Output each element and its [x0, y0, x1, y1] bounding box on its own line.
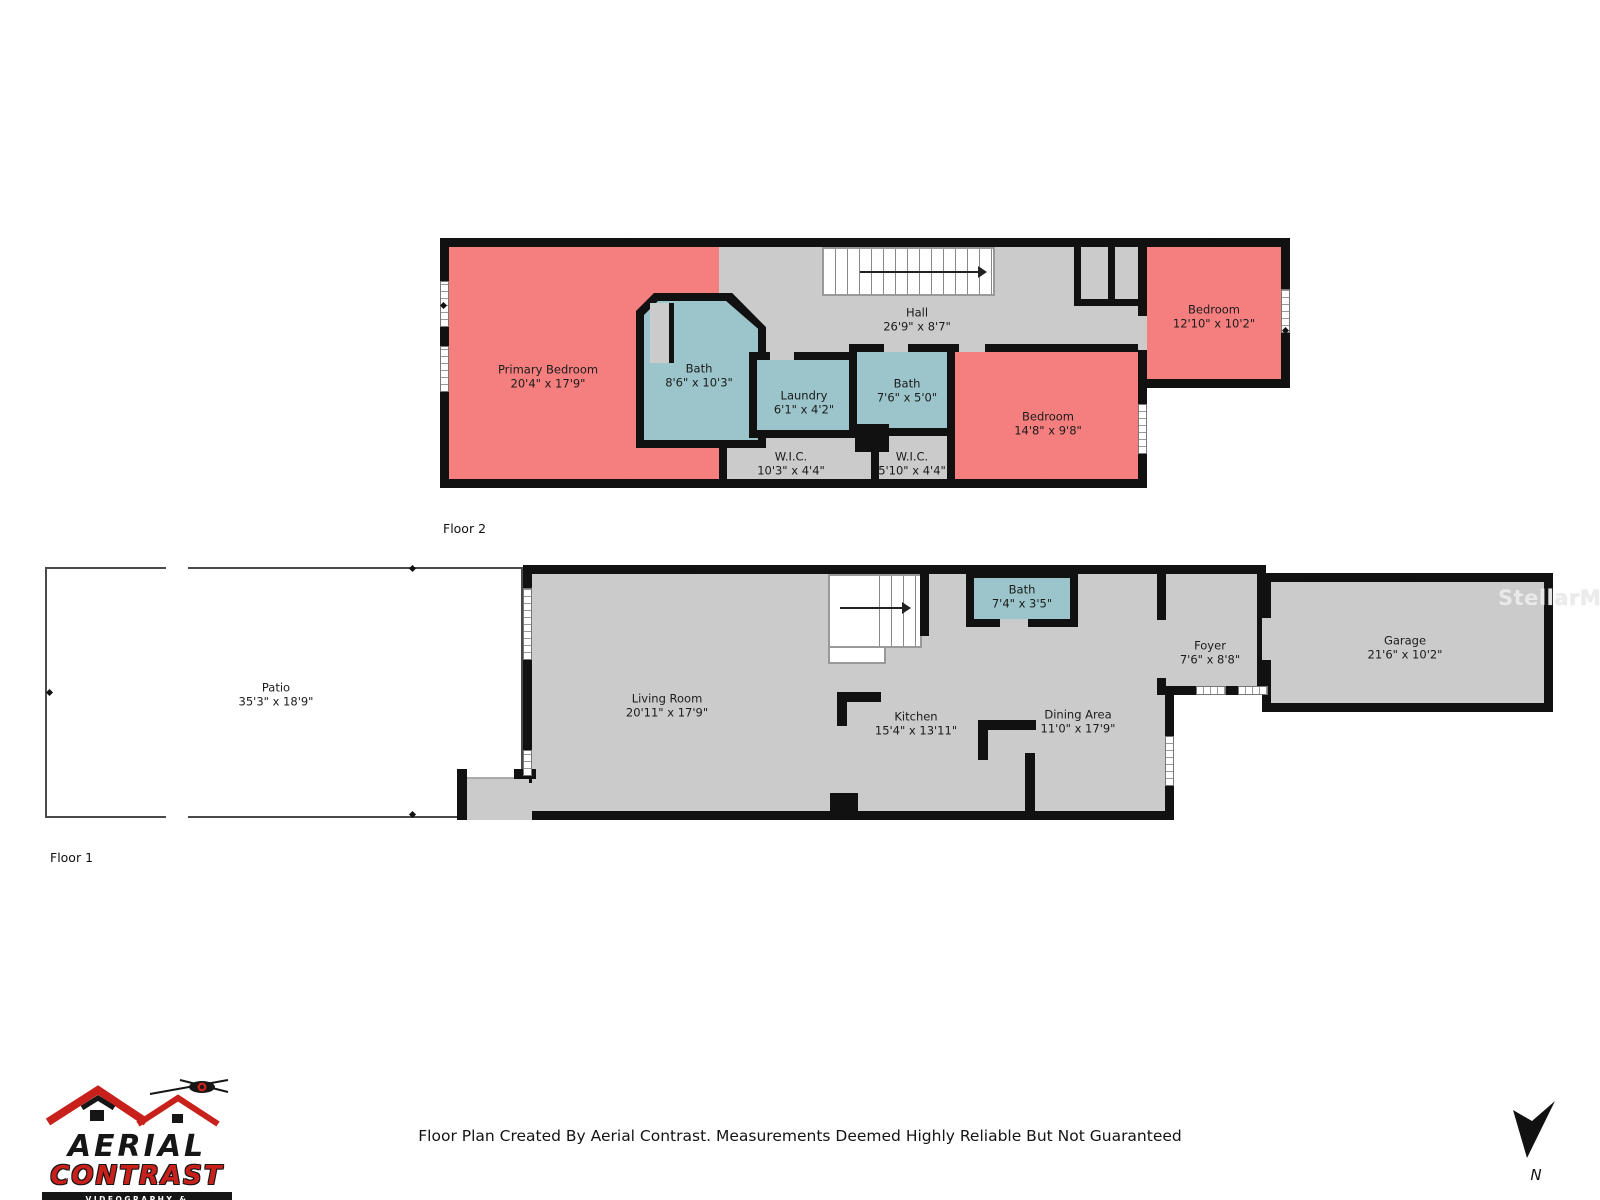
- floor1-label: Floor 1: [50, 850, 93, 865]
- room-label-bath1: Bath8'6" x 10'3": [665, 362, 733, 391]
- room-label-garage: Garage21'6" x 10'2": [1368, 634, 1443, 663]
- window: [440, 346, 449, 392]
- floor1-stairs: [828, 574, 922, 648]
- kitchen-wall: [837, 692, 847, 726]
- bath2-door-gap: [884, 344, 908, 352]
- stair-wall: [920, 572, 929, 636]
- bath3-door-gap: [1000, 619, 1028, 627]
- north-indicator: N: [1505, 1098, 1567, 1184]
- stellar-mls-watermark: StellarMLS: [1498, 586, 1600, 610]
- room-label-bedroom3: Bedroom12'10" x 10'2": [1173, 303, 1255, 332]
- roof-window: [172, 1114, 183, 1123]
- closet-wall: [1074, 247, 1081, 305]
- north-arrow-icon: [1505, 1098, 1567, 1160]
- window: [523, 588, 532, 660]
- stairs-direction-arrow: [840, 607, 902, 609]
- patio-opening: [166, 565, 188, 571]
- floorplan-page: Primary Bedroom20'4" x 17'9" Bath8'6" x …: [0, 0, 1600, 1200]
- logo-roof-drone-graphic: [42, 1076, 232, 1128]
- window: [1165, 736, 1174, 786]
- center-block-wall: [855, 424, 889, 452]
- room-label-living-room: Living Room20'11" x 17'9": [626, 692, 708, 721]
- foyer-passage-gap: [1157, 620, 1174, 678]
- room-label-wic2: W.I.C.5'10" x 4'4": [878, 450, 946, 479]
- front-door-sidelight: [1238, 686, 1268, 695]
- logo-text-contrast: CONTRAST: [42, 1163, 232, 1189]
- floor2-label: Floor 2: [443, 521, 486, 536]
- alcove-wall: [457, 769, 467, 820]
- bath1-alcove: [650, 303, 674, 363]
- stairs-direction-arrow: [860, 271, 978, 273]
- roof-window: [90, 1110, 104, 1121]
- window: [1138, 404, 1147, 454]
- kitchen-counter-wall: [978, 720, 988, 760]
- front-door-sidelight: [1196, 686, 1226, 695]
- bedroom3-door-gap: [1138, 316, 1147, 350]
- disclaimer-text: Floor Plan Created By Aerial Contrast. M…: [0, 1127, 1600, 1145]
- room-label-laundry: Laundry6'1" x 4'2": [774, 389, 834, 418]
- closet-wall: [1074, 299, 1146, 306]
- north-label: N: [1505, 1166, 1567, 1184]
- closet-wall: [1108, 247, 1115, 305]
- laundry-door-gap: [770, 352, 794, 360]
- dining-divider-wall: [1025, 753, 1035, 813]
- stair-landing: [828, 646, 886, 664]
- floor2-stairs: [822, 247, 995, 296]
- alcove-opening: [523, 783, 532, 820]
- room-label-bath3: Bath7'4" x 3'5": [992, 583, 1052, 612]
- room-label-patio: Patio35'3" x 18'9": [239, 681, 314, 710]
- room-label-hall: Hall26'9" x 8'7": [883, 306, 951, 335]
- patio-opening: [166, 814, 188, 820]
- room-label-primary-bedroom: Primary Bedroom20'4" x 17'9": [498, 363, 598, 392]
- logo-tagline: VIDEOGRAPHY & PHOTOGRAPHY: [42, 1192, 232, 1200]
- bottom-wall-block: [830, 793, 858, 820]
- room-label-bedroom2: Bedroom14'8" x 9'8": [1014, 410, 1082, 439]
- bedroom2-door-gap: [959, 344, 985, 352]
- wic1-wall: [719, 440, 727, 488]
- drone-icon: [150, 1080, 228, 1094]
- room-label-kitchen: Kitchen15'4" x 13'11": [875, 710, 957, 739]
- garage-door-gap: [1262, 618, 1271, 660]
- bedroom2-left-wall: [947, 344, 955, 488]
- stair-treads: [868, 576, 920, 646]
- entry-alcove: [467, 777, 529, 820]
- room-label-wic1: W.I.C.10'3" x 4'4": [757, 450, 825, 479]
- room-label-bath2: Bath7'6" x 5'0": [877, 377, 937, 406]
- window: [523, 750, 532, 776]
- room-label-dining-area: Dining Area11'0" x 17'9": [1041, 708, 1116, 737]
- room-label-foyer: Foyer7'6" x 8'8": [1180, 639, 1240, 668]
